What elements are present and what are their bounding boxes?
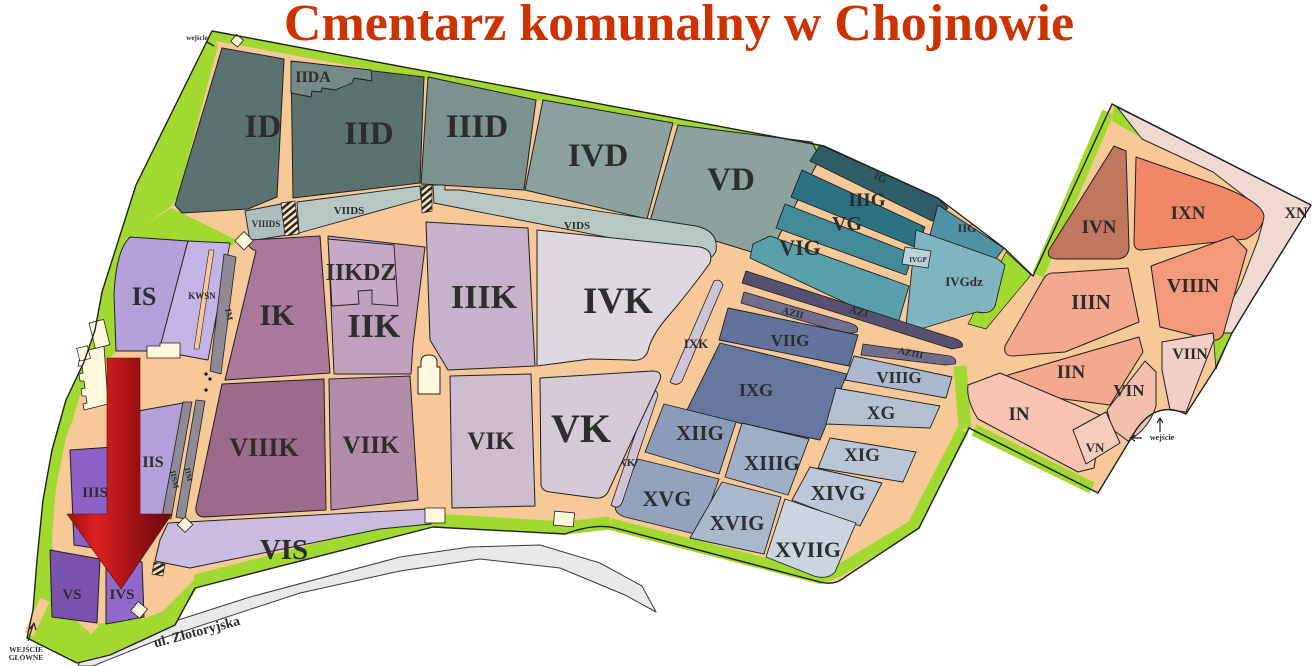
svg-text:IVD: IVD	[568, 138, 629, 174]
svg-text:VIIIK: VIIIK	[229, 433, 299, 462]
svg-text:VIG: VIG	[779, 235, 821, 260]
svg-text:IIK: IIK	[348, 308, 401, 345]
svg-text:VIIG: VIIG	[771, 331, 810, 350]
svg-text:XVG: XVG	[643, 486, 692, 511]
svg-text:wejście: wejście	[1150, 433, 1175, 442]
svg-text:IVGP: IVGP	[909, 256, 927, 264]
svg-text:KWSN: KWSN	[188, 291, 216, 301]
svg-text:IXK: IXK	[684, 336, 709, 351]
svg-text:IIN: IIN	[1057, 362, 1086, 383]
svg-text:VK: VK	[551, 406, 611, 451]
svg-text:IK: IK	[259, 299, 295, 332]
svg-text:IIID: IIID	[446, 109, 508, 145]
svg-text:IXN: IXN	[1171, 203, 1206, 224]
svg-text:XVIIG: XVIIG	[775, 537, 841, 562]
svg-text:Cmentarz komunalny w Chojnowie: Cmentarz komunalny w Chojnowie	[284, 0, 1074, 52]
svg-text:VIIDS: VIIDS	[334, 205, 365, 217]
svg-text:IVN: IVN	[1082, 217, 1117, 238]
svg-text:VIIN: VIIN	[1172, 346, 1208, 363]
svg-text:VIIIDS: VIIIDS	[252, 219, 281, 229]
svg-text:VIK: VIK	[467, 428, 515, 455]
svg-text:IIKDZ: IIKDZ	[326, 260, 397, 286]
svg-text:IVGdz: IVGdz	[945, 274, 983, 289]
svg-text:IVK: IVK	[583, 281, 653, 322]
svg-text:VG: VG	[832, 213, 862, 235]
svg-text:XIG: XIG	[844, 445, 880, 466]
svg-text:VIIK: VIIK	[343, 432, 401, 459]
svg-text:IN: IN	[1008, 404, 1029, 425]
svg-text:IIS: IIS	[142, 454, 163, 471]
svg-text:wejście: wejście	[186, 34, 207, 42]
svg-text:IM: IM	[223, 308, 235, 322]
svg-text:GŁÓWNE: GŁÓWNE	[9, 652, 44, 662]
svg-text:XVIG: XVIG	[710, 511, 765, 535]
svg-text:IID: IID	[344, 116, 394, 152]
svg-text:IIIG: IIIG	[849, 190, 886, 211]
svg-text:IS: IS	[132, 282, 157, 311]
svg-text:VN: VN	[1086, 440, 1105, 455]
svg-text:IIIN: IIIN	[1071, 290, 1111, 314]
svg-text:IIG: IIG	[958, 221, 977, 235]
svg-text:IXG: IXG	[739, 380, 773, 400]
svg-text:VIIIN: VIIIN	[1167, 275, 1220, 297]
svg-text:ID: ID	[245, 109, 282, 145]
svg-text:VIDS: VIDS	[564, 220, 590, 232]
svg-text:XG: XG	[867, 403, 896, 424]
svg-text:XIIG: XIIG	[676, 421, 724, 445]
svg-text:VIN: VIN	[1113, 381, 1145, 400]
svg-text:VD: VD	[707, 162, 755, 198]
svg-text:XN: XN	[1284, 205, 1308, 222]
svg-text:VS: VS	[62, 587, 81, 603]
svg-text:VIIIG: VIIIG	[876, 368, 921, 387]
svg-text:IVS: IVS	[109, 587, 134, 603]
svg-text:IIIS: IIIS	[82, 485, 108, 501]
svg-text:XIIIG: XIIIG	[744, 451, 800, 475]
svg-text:IIIK: IIIK	[451, 279, 518, 316]
svg-text:XIVG: XIVG	[811, 481, 866, 505]
svg-text:IIDA: IIDA	[295, 69, 331, 86]
